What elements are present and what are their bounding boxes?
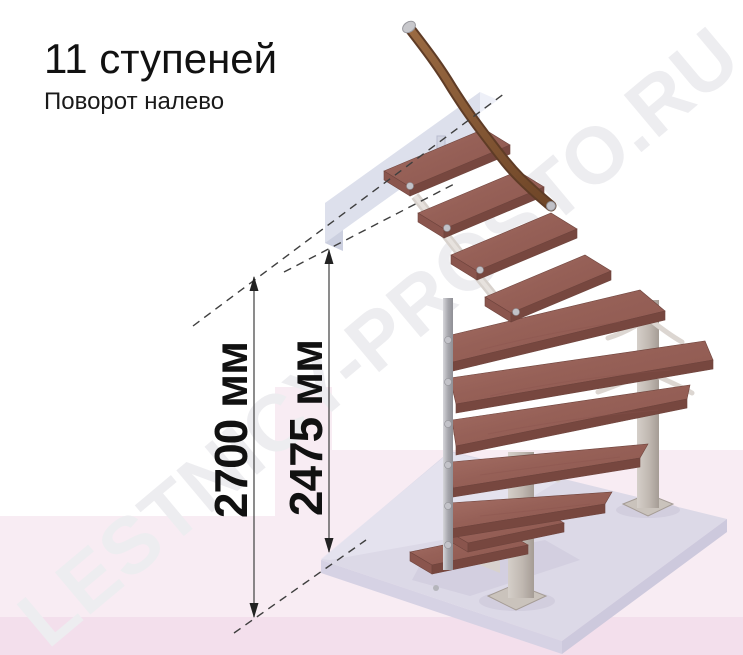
stair-diagram-page: 11 ступеней Поворот налево xyxy=(0,0,743,655)
dimension-flight: 2475 мм xyxy=(280,249,334,553)
dimension-flight-label: 2475 мм xyxy=(280,340,332,516)
page-title: 11 ступеней xyxy=(44,36,277,82)
page-subtitle: Поворот налево xyxy=(44,88,277,116)
title-block: 11 ступеней Поворот налево xyxy=(44,36,277,116)
pink-strip-bottom xyxy=(0,617,743,655)
dimension-total-label: 2700 мм xyxy=(205,342,257,518)
rod-foot-ball xyxy=(433,585,439,591)
dimension-flight-arrow-up xyxy=(325,249,334,264)
handrail-end-cap xyxy=(547,202,556,211)
